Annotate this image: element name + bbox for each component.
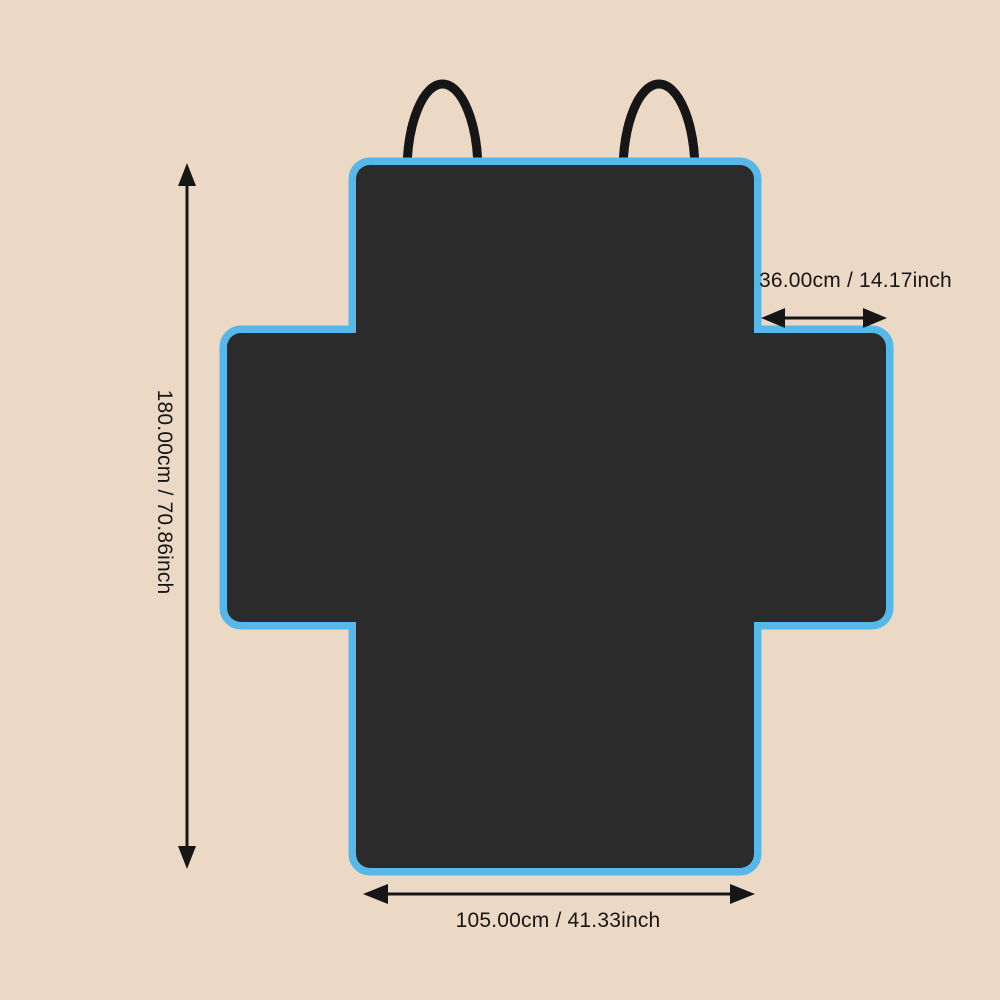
product-dimension-diagram: 180.00cm / 70.86inch 36.00cm / 14.17inch…: [0, 0, 1000, 1000]
top-flap-width-dimension-arrow: [761, 308, 887, 328]
cover-side-flaps: [227, 333, 886, 622]
bottom-width-dimension-arrow: [363, 884, 755, 904]
arrow-right-icon: [730, 884, 755, 904]
arrow-up-icon: [178, 163, 196, 186]
arrow-left-icon: [761, 308, 785, 328]
bottom-width-dimension-label: 105.00cm / 41.33inch: [456, 909, 661, 933]
arrow-down-icon: [178, 846, 196, 869]
seat-cover-illustration: [0, 0, 1000, 1000]
top-flap-width-dimension-label: 36.00cm / 14.17inch: [759, 269, 952, 293]
arrow-left-icon: [363, 884, 388, 904]
height-dimension-arrow: [178, 163, 196, 869]
arrow-right-icon: [863, 308, 887, 328]
height-dimension-label: 180.00cm / 70.86inch: [152, 390, 176, 595]
